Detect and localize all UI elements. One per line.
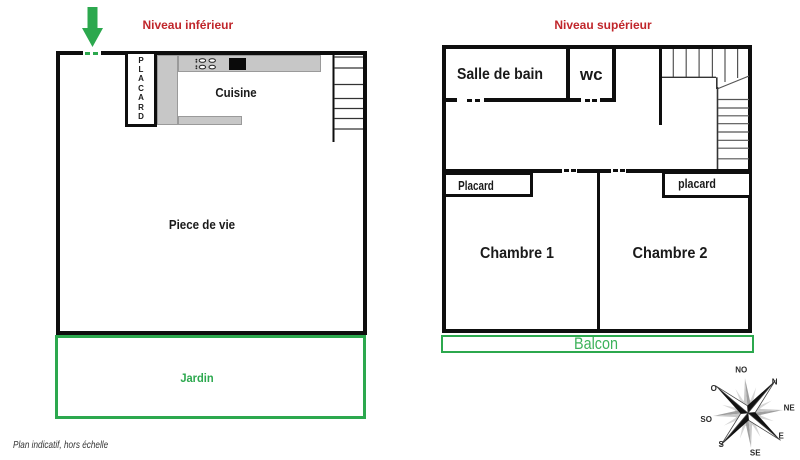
svg-text:NO: NO	[735, 366, 747, 375]
svg-text:SO: SO	[700, 415, 712, 424]
svg-text:NE: NE	[784, 404, 796, 413]
svg-text:O: O	[711, 384, 717, 393]
svg-text:N: N	[772, 378, 778, 387]
svg-text:S: S	[719, 440, 725, 449]
svg-text:E: E	[779, 432, 785, 441]
svg-text:SE: SE	[750, 449, 761, 458]
